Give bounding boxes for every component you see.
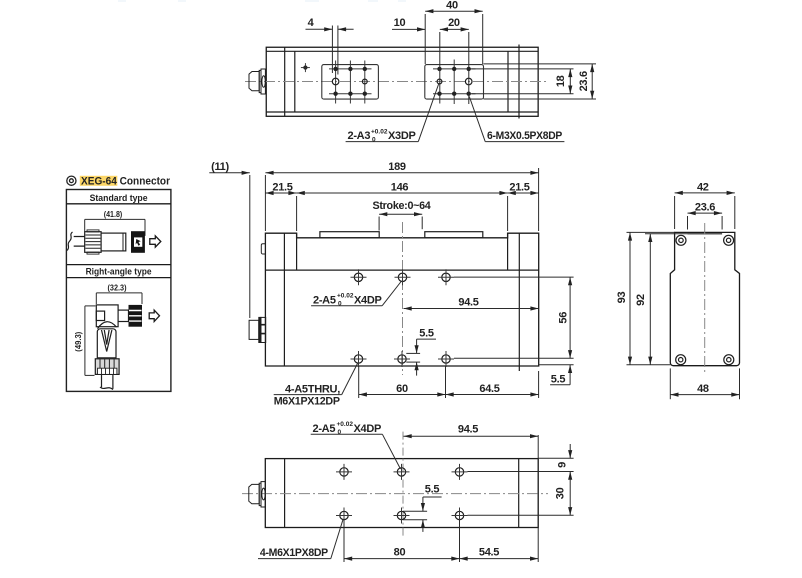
svg-text:30: 30: [555, 487, 567, 499]
svg-text:9: 9: [556, 462, 568, 468]
svg-text:18: 18: [555, 75, 567, 87]
svg-text:5.5: 5.5: [419, 328, 434, 340]
svg-text:(49.3): (49.3): [74, 331, 83, 351]
svg-text:146: 146: [391, 182, 409, 194]
svg-text:56: 56: [558, 312, 570, 324]
svg-text:64.5: 64.5: [479, 383, 499, 395]
svg-text:4-M6X1PX8DP: 4-M6X1PX8DP: [260, 547, 328, 559]
svg-text:23.6: 23.6: [578, 71, 590, 91]
svg-text:21.5: 21.5: [272, 182, 292, 194]
svg-text:(32.3): (32.3): [108, 283, 127, 292]
svg-text:2-A5: 2-A5: [313, 423, 336, 435]
svg-text:XEG-64 Connector: XEG-64 Connector: [81, 176, 171, 188]
svg-text:0: 0: [338, 429, 342, 436]
svg-text:189: 189: [388, 161, 406, 173]
svg-text:M6X1PX12DP: M6X1PX12DP: [274, 396, 340, 408]
svg-text:60: 60: [396, 383, 408, 395]
svg-text:5.5: 5.5: [551, 373, 566, 385]
svg-text:6-M3X0.5PX8DP: 6-M3X0.5PX8DP: [487, 130, 562, 142]
svg-text:20: 20: [448, 17, 460, 29]
svg-text:40: 40: [446, 0, 458, 12]
svg-text:Right-angle type: Right-angle type: [86, 266, 152, 277]
svg-text:23.6: 23.6: [695, 202, 715, 214]
svg-text:(11): (11): [211, 161, 229, 173]
svg-text:48: 48: [697, 383, 709, 395]
svg-text:80: 80: [394, 547, 406, 559]
svg-text:Standard type: Standard type: [90, 193, 148, 204]
svg-text:21.5: 21.5: [509, 182, 529, 194]
svg-text:X3DP: X3DP: [388, 130, 416, 142]
svg-text:Stroke:0~64: Stroke:0~64: [373, 200, 432, 212]
svg-text:92: 92: [635, 294, 647, 306]
svg-text:+0.02: +0.02: [371, 129, 388, 136]
svg-text:5.5: 5.5: [425, 484, 440, 496]
svg-text:+0.02: +0.02: [337, 293, 354, 300]
svg-text:X4DP: X4DP: [354, 423, 382, 435]
svg-text:42: 42: [697, 181, 709, 193]
svg-text:(41.8): (41.8): [104, 210, 123, 219]
svg-text:2-A3: 2-A3: [348, 130, 371, 142]
svg-text:10: 10: [394, 17, 406, 29]
svg-text:4-A5THRU,: 4-A5THRU,: [285, 384, 340, 396]
svg-text:X4DP: X4DP: [354, 294, 382, 306]
svg-text:+0.02: +0.02: [337, 421, 354, 428]
svg-text:54.5: 54.5: [479, 547, 499, 559]
svg-text:94.5: 94.5: [458, 423, 478, 435]
svg-text:0: 0: [372, 137, 376, 144]
svg-text:93: 93: [616, 292, 628, 304]
svg-text:94.5: 94.5: [458, 297, 478, 309]
svg-text:2-A5: 2-A5: [313, 294, 336, 306]
svg-text:0: 0: [338, 301, 342, 308]
